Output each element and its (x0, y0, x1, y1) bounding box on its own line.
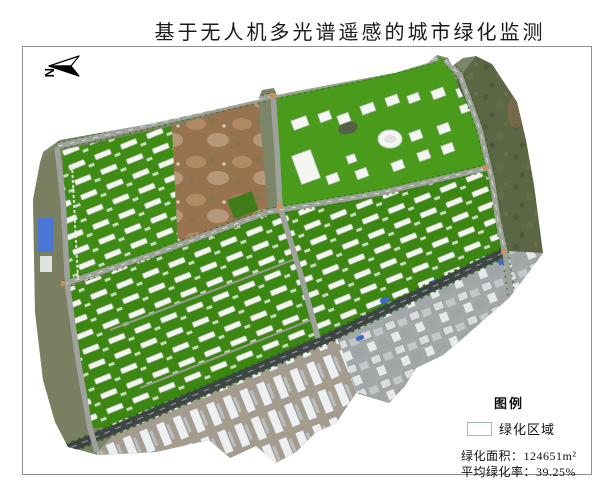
stat-green-area: 绿化面积：124651m² (461, 448, 579, 464)
green-area-swatch (467, 422, 492, 436)
north-label: N (42, 68, 57, 77)
north-arrow-icon: N (31, 53, 87, 79)
green-area-label: 绿化区域 (499, 419, 555, 438)
legend-title: 图例 (459, 393, 579, 412)
stat-green-rate: 平均绿化率：39.25% (461, 464, 579, 480)
page-title: 基于无人机多光谱遥感的城市绿化监测 (100, 16, 600, 45)
map-frame: N 图例 绿化区域 绿化面积：124651m² 平均绿化率：39.25% (22, 46, 592, 475)
legend: 图例 绿化区域 绿化面积：124651m² 平均绿化率：39.25% (459, 393, 579, 480)
legend-item-green-area: 绿化区域 (467, 419, 579, 438)
report-figure: 基于无人机多光谱遥感的城市绿化监测 N 图例 绿化区域 绿化面积：124651m… (0, 0, 600, 486)
north-arrow: N (31, 53, 87, 79)
legend-stats: 绿化面积：124651m² 平均绿化率：39.25% (461, 448, 579, 480)
